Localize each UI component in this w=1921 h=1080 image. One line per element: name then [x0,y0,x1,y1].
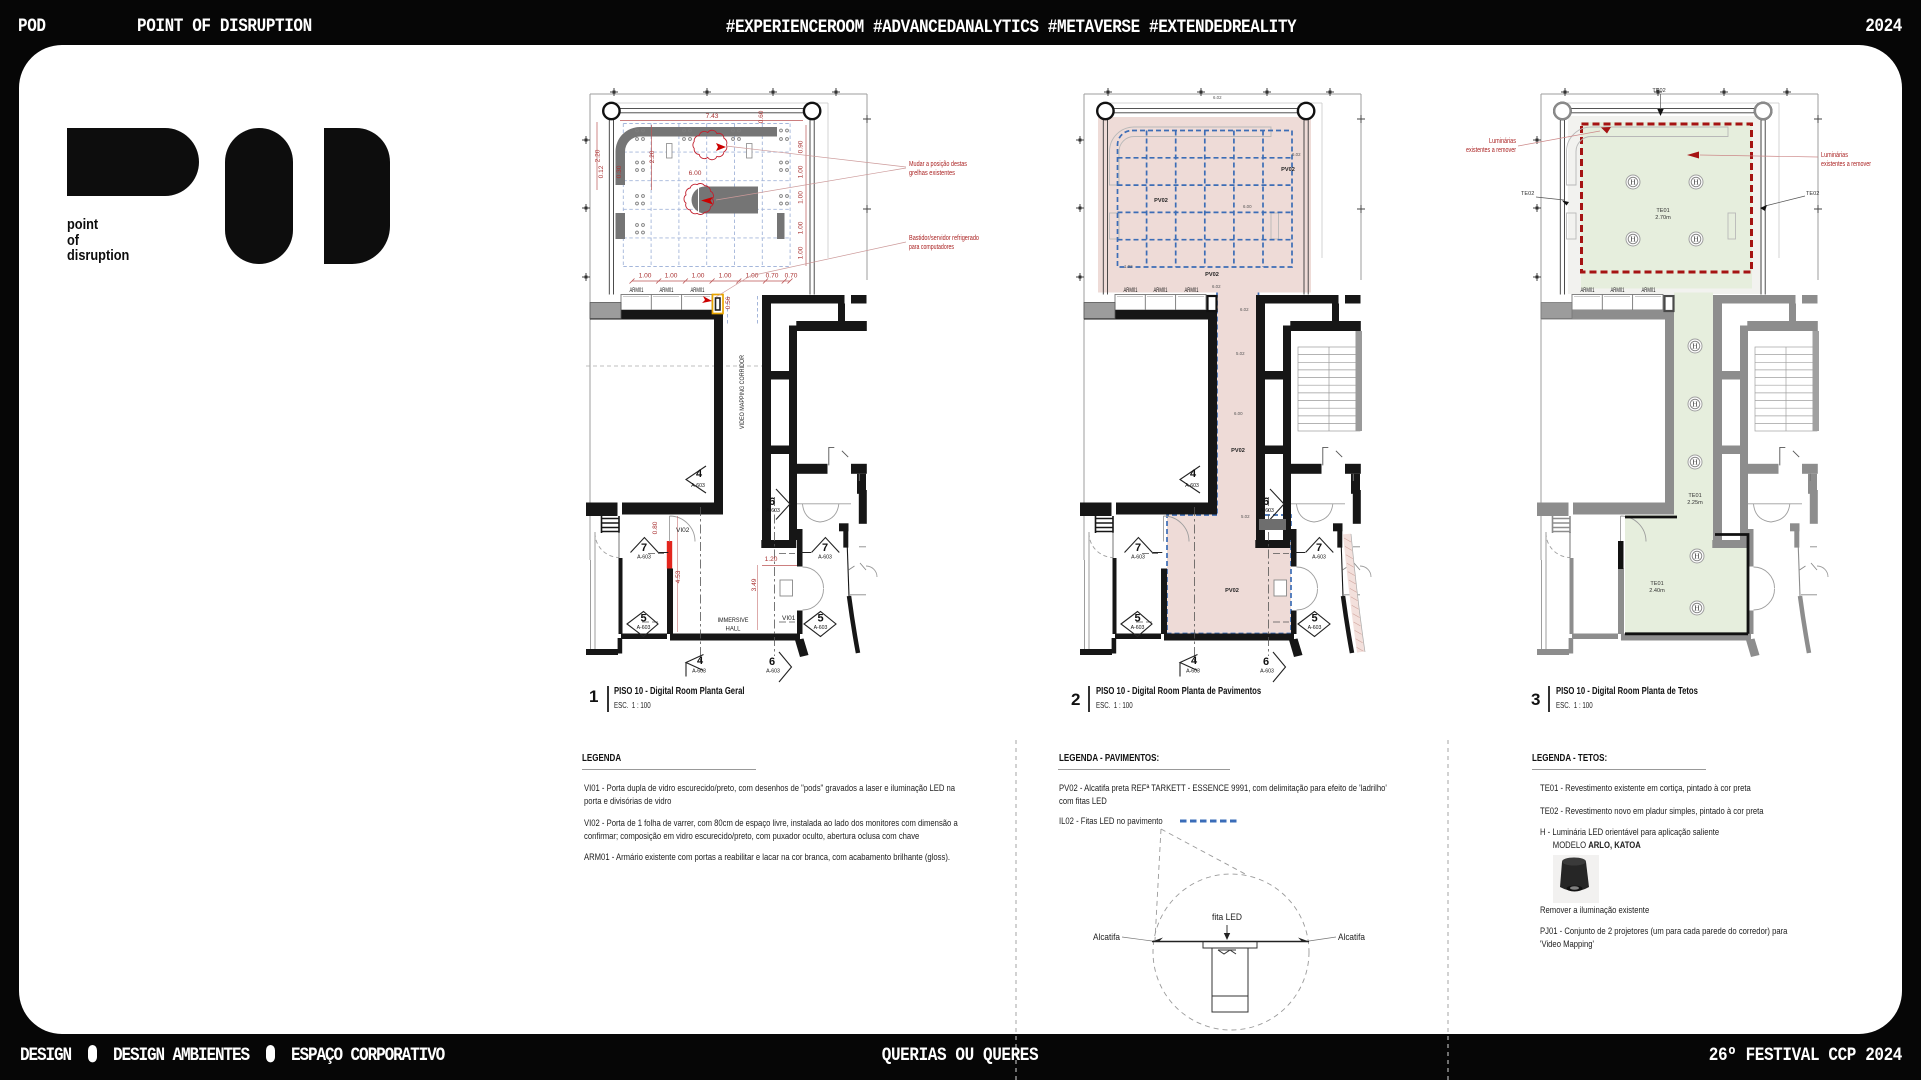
svg-text:PV02: PV02 [1154,198,1168,204]
svg-text:1.00: 1.00 [798,246,805,259]
svg-text:Alcatifa: Alcatifa [1338,932,1365,942]
svg-text:grelhas existentes: grelhas existentes [909,170,955,177]
svg-text:0.56: 0.56 [725,296,732,309]
svg-text:1.02: 1.02 [1124,264,1133,269]
svg-text:6.02: 6.02 [1240,307,1249,312]
svg-text:1.00: 1.00 [746,273,759,280]
svg-text:H: H [1692,458,1698,467]
svg-text:H: H [1630,235,1636,244]
svg-text:6.00: 6.00 [689,170,702,177]
svg-text:PV02: PV02 [1281,167,1295,173]
svg-text:0.12: 0.12 [598,165,605,178]
svg-text:VI02: VI02 [676,527,690,534]
svg-text:existentes a remover: existentes a remover [1821,161,1872,168]
svg-text:2.70m: 2.70m [1655,215,1671,221]
svg-text:TE02: TE02 [1652,88,1665,94]
svg-text:Bastidor/servidor refrigerado: Bastidor/servidor refrigerado [909,235,979,242]
svg-text:existentes a remover: existentes a remover [1466,147,1517,154]
svg-text:TE01: TE01 [1688,493,1701,499]
svg-text:6.02: 6.02 [1213,95,1222,100]
svg-text:H: H [1630,178,1636,187]
svg-text:TE02: TE02 [1806,191,1819,197]
svg-text:TE01: TE01 [1650,581,1663,587]
svg-text:4.53: 4.53 [675,570,682,583]
svg-text:5.02: 5.02 [1241,514,1250,519]
svg-text:0.30: 0.30 [616,165,623,178]
svg-text:2.20: 2.20 [595,149,602,162]
svg-text:2.40m: 2.40m [1649,588,1665,594]
svg-text:H: H [1692,400,1698,409]
svg-text:6.02: 6.02 [1212,284,1221,289]
svg-text:0.90: 0.90 [798,140,805,153]
svg-text:PV02: PV02 [1231,448,1245,454]
svg-text:2.20: 2.20 [649,150,656,163]
svg-text:1.00: 1.00 [798,165,805,178]
svg-text:H: H [1694,604,1700,613]
svg-text:fita LED: fita LED [1212,912,1242,922]
svg-text:H: H [1692,342,1698,351]
svg-text:PV02: PV02 [1225,588,1239,594]
svg-text:H: H [1693,178,1699,187]
svg-text:1.20: 1.20 [765,556,778,563]
svg-text:TE02: TE02 [1521,191,1534,197]
svg-text:1.00: 1.00 [692,273,705,280]
svg-text:VIDEO MAPPING CORRIDOR: VIDEO MAPPING CORRIDOR [739,355,746,429]
svg-text:1.00: 1.00 [665,273,678,280]
svg-text:3.49: 3.49 [751,578,758,591]
svg-text:Alcatifa: Alcatifa [1093,932,1120,942]
svg-text:2.25m: 2.25m [1687,500,1703,506]
svg-text:VI01: VI01 [782,615,796,622]
svg-text:H: H [1694,552,1700,561]
svg-text:1.00: 1.00 [639,273,652,280]
svg-text:7.43: 7.43 [706,113,719,120]
svg-text:HALL: HALL [726,626,741,633]
svg-text:para computadores: para computadores [909,244,954,251]
svg-text:0.60: 0.60 [758,110,765,123]
svg-text:IMMERSIVE: IMMERSIVE [718,617,749,624]
svg-text:6.00: 6.00 [1243,204,1252,209]
svg-text:Mudar a posição destas: Mudar a posição destas [909,161,967,168]
svg-text:Luminárias: Luminárias [1821,152,1848,159]
svg-text:1.00: 1.00 [798,221,805,234]
svg-text:H: H [1693,235,1699,244]
svg-text:5.02: 5.02 [1236,351,1245,356]
svg-text:0.80: 0.80 [652,521,659,534]
svg-text:TE01: TE01 [1656,208,1669,214]
svg-text:1.00: 1.00 [798,191,805,204]
svg-text:6.00: 6.00 [1234,411,1243,416]
svg-text:1.00: 1.00 [719,273,732,280]
svg-text:6.02: 6.02 [1292,152,1301,157]
svg-text:Luminárias: Luminárias [1489,138,1516,145]
svg-text:PV02: PV02 [1205,272,1219,278]
